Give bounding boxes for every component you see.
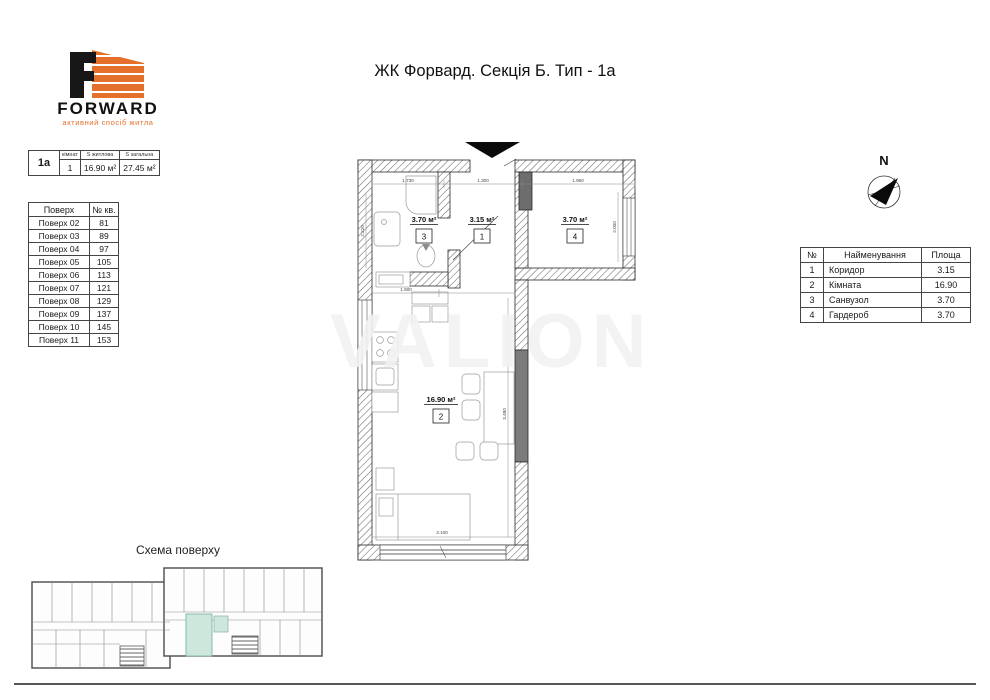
forward-logo: FORWARD активний спосіб житла xyxy=(44,48,176,128)
wall xyxy=(515,268,635,280)
table-row: Поверх 0389 xyxy=(29,230,119,243)
dim-label: 1.600 xyxy=(400,287,412,292)
table-row: Поверх 06113 xyxy=(29,269,119,282)
kitchen-cabinet xyxy=(372,392,398,412)
floors-col-header: Поверх xyxy=(29,203,90,217)
svg-text:1: 1 xyxy=(480,233,485,242)
floorplan-page: FORWARD активний спосіб житла ЖК Форвард… xyxy=(0,0,990,700)
window-room4 xyxy=(623,198,635,256)
footer-divider xyxy=(14,683,976,685)
room-label-2: 16.90 м² 2 xyxy=(424,395,458,423)
legend-area-header: Площа xyxy=(922,248,971,263)
wall xyxy=(515,160,635,172)
svg-text:3.15 м²: 3.15 м² xyxy=(470,215,495,224)
kitchen-counter xyxy=(412,292,448,304)
table-row: Поверх 11153 xyxy=(29,334,119,347)
table-row: Поверх 0281 xyxy=(29,217,119,230)
dim-label: 1.960 xyxy=(572,178,584,183)
wall xyxy=(438,172,450,218)
stairwell xyxy=(232,636,258,654)
col-total-header: S загальна xyxy=(120,151,159,160)
legend-name-header: Найменування xyxy=(824,248,922,263)
floor-scheme: Схема поверху xyxy=(28,543,328,677)
dining-table xyxy=(484,372,514,444)
table-row: 4Гардероб3.70 xyxy=(801,308,971,323)
window-bottom xyxy=(380,545,506,560)
svg-text:2: 2 xyxy=(439,413,444,422)
window-left xyxy=(358,300,372,390)
living-area: 16.90 м² xyxy=(80,160,119,176)
page-title: ЖК Форвард. Секція Б. Тип - 1а xyxy=(0,62,990,81)
wall xyxy=(358,160,470,172)
floor-scheme-drawing xyxy=(28,560,328,672)
room-label-3: 3.70 м² 3 xyxy=(410,215,438,243)
stairwell xyxy=(120,646,144,666)
scheme-title: Схема поверху xyxy=(28,543,328,557)
forward-logo-icon: FORWARD активний спосіб житла xyxy=(44,48,176,128)
washing-machine-drum xyxy=(379,275,403,284)
svg-text:4: 4 xyxy=(573,233,578,242)
chair xyxy=(462,374,480,394)
table-row: Поверх 08129 xyxy=(29,295,119,308)
compass: N xyxy=(855,150,915,227)
nightstand xyxy=(376,468,394,490)
wall xyxy=(448,250,460,288)
table-row: Поверх 10145 xyxy=(29,321,119,334)
col-living-header: S житлова xyxy=(80,151,119,160)
wall xyxy=(410,272,448,286)
total-area: 27.45 м² xyxy=(120,160,159,176)
wall xyxy=(515,280,528,350)
highlighted-apartment xyxy=(186,614,212,656)
dim-label: 3.100 xyxy=(436,530,448,535)
chair xyxy=(480,442,498,460)
table-row: Поверх 0497 xyxy=(29,243,119,256)
north-arrow-icon: N xyxy=(855,150,915,222)
svg-text:3.70 м²: 3.70 м² xyxy=(563,215,588,224)
dimension-lines xyxy=(366,180,635,541)
faucet xyxy=(382,220,387,225)
table-row: 2Кімната16.90 xyxy=(801,278,971,293)
chair xyxy=(462,400,480,420)
dim-label: 2.000 xyxy=(612,221,617,233)
room-label-4: 3.70 м² 4 xyxy=(561,215,589,243)
highlighted-apartment-part xyxy=(214,616,228,632)
svg-text:16.90 м²: 16.90 м² xyxy=(427,395,456,404)
chair xyxy=(456,442,474,460)
table-row: Поверх 05105 xyxy=(29,256,119,269)
rooms-count: 1 xyxy=(60,160,81,176)
floor-plan: 1.730 1.300 1.960 2.220 2.000 1.600 3.48… xyxy=(352,136,644,583)
wall-solid xyxy=(515,350,528,462)
sink xyxy=(374,212,400,246)
legend-num-header: № xyxy=(801,248,824,263)
table-row: Поверх 07121 xyxy=(29,282,119,295)
rooms-legend-table: № Найменування Площа 1Коридор3.15 2Кімна… xyxy=(800,247,971,323)
fridge xyxy=(432,306,448,322)
compass-label: N xyxy=(879,153,888,168)
apartment-type: 1а xyxy=(29,151,60,176)
kitchen-cabinet xyxy=(412,306,430,322)
logo-brand-text: FORWARD xyxy=(57,99,159,118)
dim-label: 3.480 xyxy=(502,408,507,420)
stove xyxy=(372,332,398,362)
svg-text:3: 3 xyxy=(422,233,427,242)
table-row: Поверх 09137 xyxy=(29,308,119,321)
floors-table: Поверх № кв. Поверх 0281 Поверх 0389 Пов… xyxy=(28,202,119,347)
dim-label: 1.300 xyxy=(477,178,489,183)
table-row: 3Санвузол3.70 xyxy=(801,293,971,308)
svg-text:3.70 м²: 3.70 м² xyxy=(412,215,437,224)
col-rooms-header: кімнат xyxy=(60,151,81,160)
entrance-arrow-icon xyxy=(465,142,520,158)
table-row: 1Коридор3.15 xyxy=(801,263,971,278)
room-label-1: 3.15 м² 1 xyxy=(468,215,496,243)
pillow xyxy=(379,498,393,516)
apartment-info-table: 1а кімнат S житлова S загальна 1 16.90 м… xyxy=(28,150,160,176)
dim-label: 1.730 xyxy=(402,178,414,183)
shaft xyxy=(519,172,532,210)
dim-label: 2.220 xyxy=(360,225,365,237)
logo-tagline: активний спосіб житла xyxy=(62,118,153,127)
apts-col-header: № кв. xyxy=(90,203,119,217)
